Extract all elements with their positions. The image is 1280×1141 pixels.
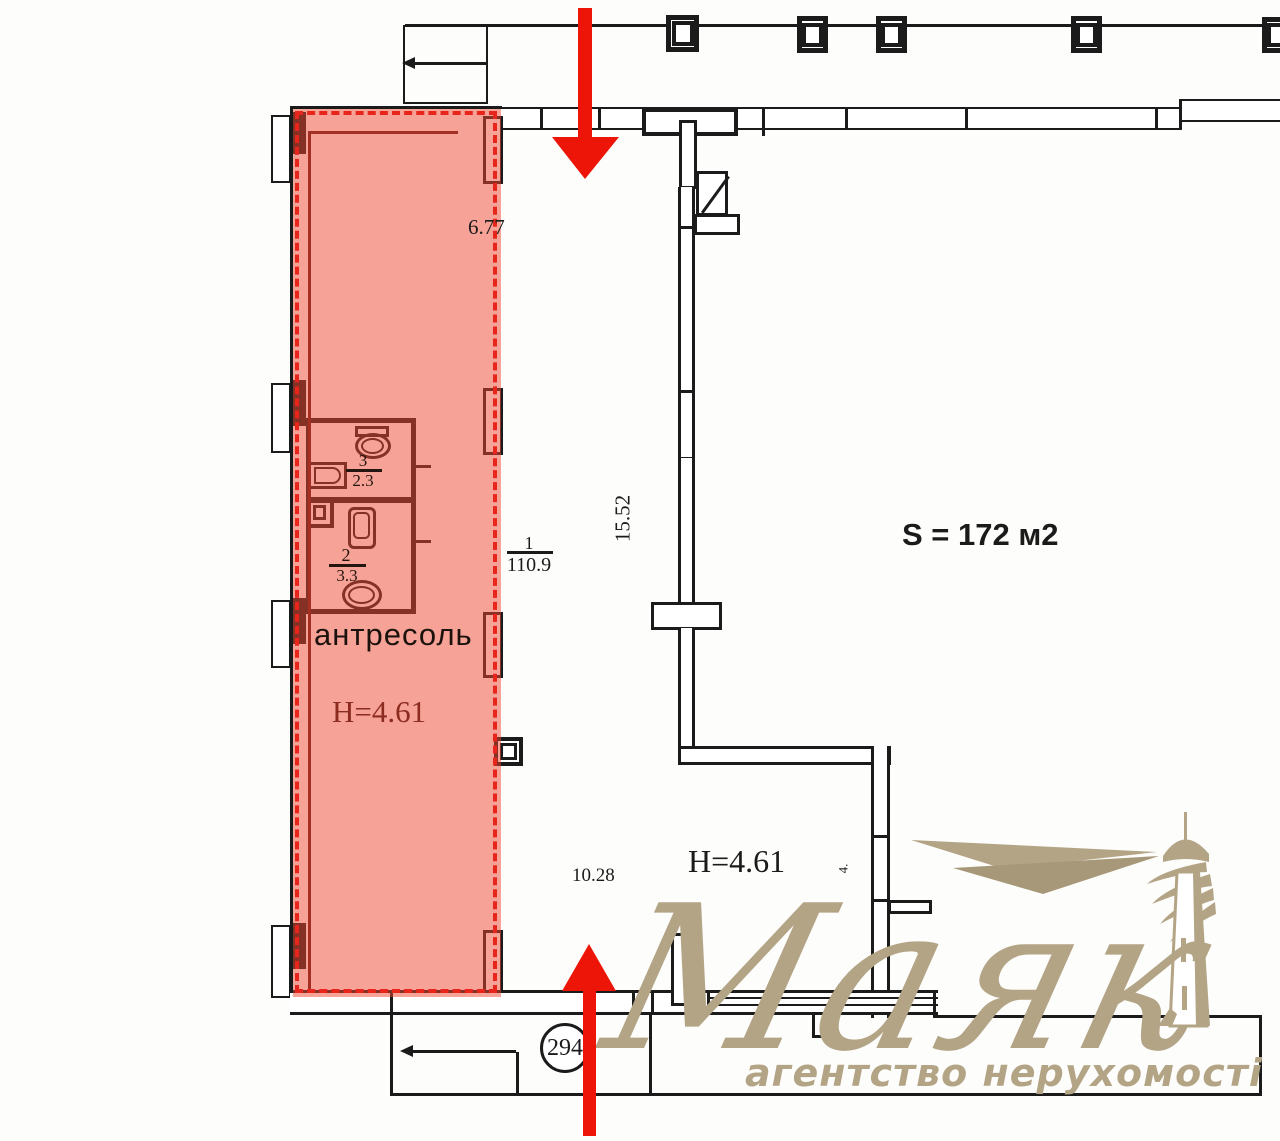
brand-tagline: агентство нерухомості [745, 1051, 1263, 1095]
wall-joint [678, 226, 695, 229]
column-square-inner [881, 23, 902, 47]
stair-box-top [403, 25, 488, 104]
wall-vertical-right [871, 746, 890, 1018]
mezzanine-height-label: H=4.61 [332, 696, 426, 727]
window-line [707, 997, 938, 999]
dim-bottom-label: 10.28 [572, 866, 615, 885]
wall-joint [707, 990, 710, 1015]
wall-spine [678, 187, 695, 393]
stairs-arrow-icon [400, 1045, 413, 1057]
wall-joint [965, 107, 968, 130]
mezzanine-zone-dashed-border [295, 111, 497, 993]
stairs-arrow-icon [402, 57, 415, 69]
column-square [1262, 17, 1280, 53]
wall-joint [871, 835, 890, 838]
unit-number: 294 [547, 1036, 583, 1060]
wall-horizontal [678, 746, 891, 765]
column-square [876, 16, 907, 53]
overlay-graphics: Маяк агентство нерухомості [0, 0, 1280, 1141]
mezzanine-solid-line-left [308, 131, 311, 989]
wall-spine [678, 628, 695, 748]
wc-lower-area: 3.3 [327, 567, 367, 584]
wall-joint [845, 107, 848, 130]
stairs-arrow-line [412, 62, 487, 65]
wall-joint [651, 990, 654, 1015]
pilaster [271, 600, 291, 668]
wall-spine-column [678, 390, 695, 460]
column-on-band [671, 933, 694, 1006]
column-below-band [812, 1012, 830, 1038]
pilaster [271, 925, 291, 998]
mezzanine-solid-line-top [308, 131, 458, 134]
column-square-inner [1076, 23, 1097, 47]
pilaster [271, 115, 291, 183]
hall-height-label: H=4.61 [688, 845, 785, 877]
mezzanine-label: антресоль [314, 619, 473, 650]
room-outline-bottom [390, 1093, 1262, 1096]
column-square-inner [500, 743, 517, 760]
wall-cross-block [651, 602, 722, 630]
wall-top-line [405, 24, 1280, 27]
dim-side-small-label: 4. [836, 864, 849, 874]
wall-joint [1155, 107, 1158, 130]
wall-stub [888, 900, 932, 914]
door-frame [696, 171, 728, 216]
wc-upper-area: 2.3 [344, 472, 382, 489]
wall-top-band-step [1180, 99, 1280, 122]
room-outline-right [1259, 1015, 1262, 1096]
stairs-arrow-line [410, 1050, 516, 1053]
stairwell-wall [516, 1052, 519, 1096]
window-line [707, 1004, 938, 1006]
wall-corner [933, 990, 936, 1018]
wall-joint [598, 107, 601, 130]
column-square [1071, 16, 1102, 53]
wall-joint [632, 990, 635, 1015]
dim-hall-length-label: 15.52 [613, 484, 634, 554]
room-outline-top [935, 1015, 1262, 1018]
column-square [797, 16, 828, 53]
wall-joint [540, 107, 543, 130]
total-area-label: S = 172 м2 [902, 519, 1059, 550]
wall-joint [1179, 99, 1182, 130]
wall-spine [678, 458, 695, 604]
column-square-inner [672, 21, 694, 46]
entrance-arrow-top-icon [552, 8, 619, 179]
stairwell-wall [390, 1015, 393, 1096]
wall-joint [762, 107, 765, 136]
light-beam-icon [953, 856, 1159, 894]
lighthouse-icon [1147, 812, 1216, 1026]
floorplan-canvas: 294 антресоль H=4.61 3 2.3 2 3.3 6.77 15… [0, 0, 1280, 1141]
stairwell-wall [649, 1015, 652, 1096]
wall-spine-post [679, 120, 697, 189]
unit-number-circle: 294 [540, 1023, 590, 1073]
column-square [666, 15, 699, 52]
wc-upper-room-no: 3 [344, 452, 382, 469]
column-square-inner [1267, 23, 1280, 47]
hall-room-no: 1 [503, 534, 555, 552]
wc-lower-room-no: 2 [327, 546, 365, 564]
hall-area-label: 110.9 [499, 555, 559, 575]
light-beam-icon [911, 840, 1157, 869]
pilaster [271, 383, 291, 453]
door-jamb-block [694, 214, 740, 235]
wall-top-band [500, 107, 1180, 130]
column-square-inner [802, 23, 823, 47]
dim-top-label: 6.77 [468, 217, 505, 238]
